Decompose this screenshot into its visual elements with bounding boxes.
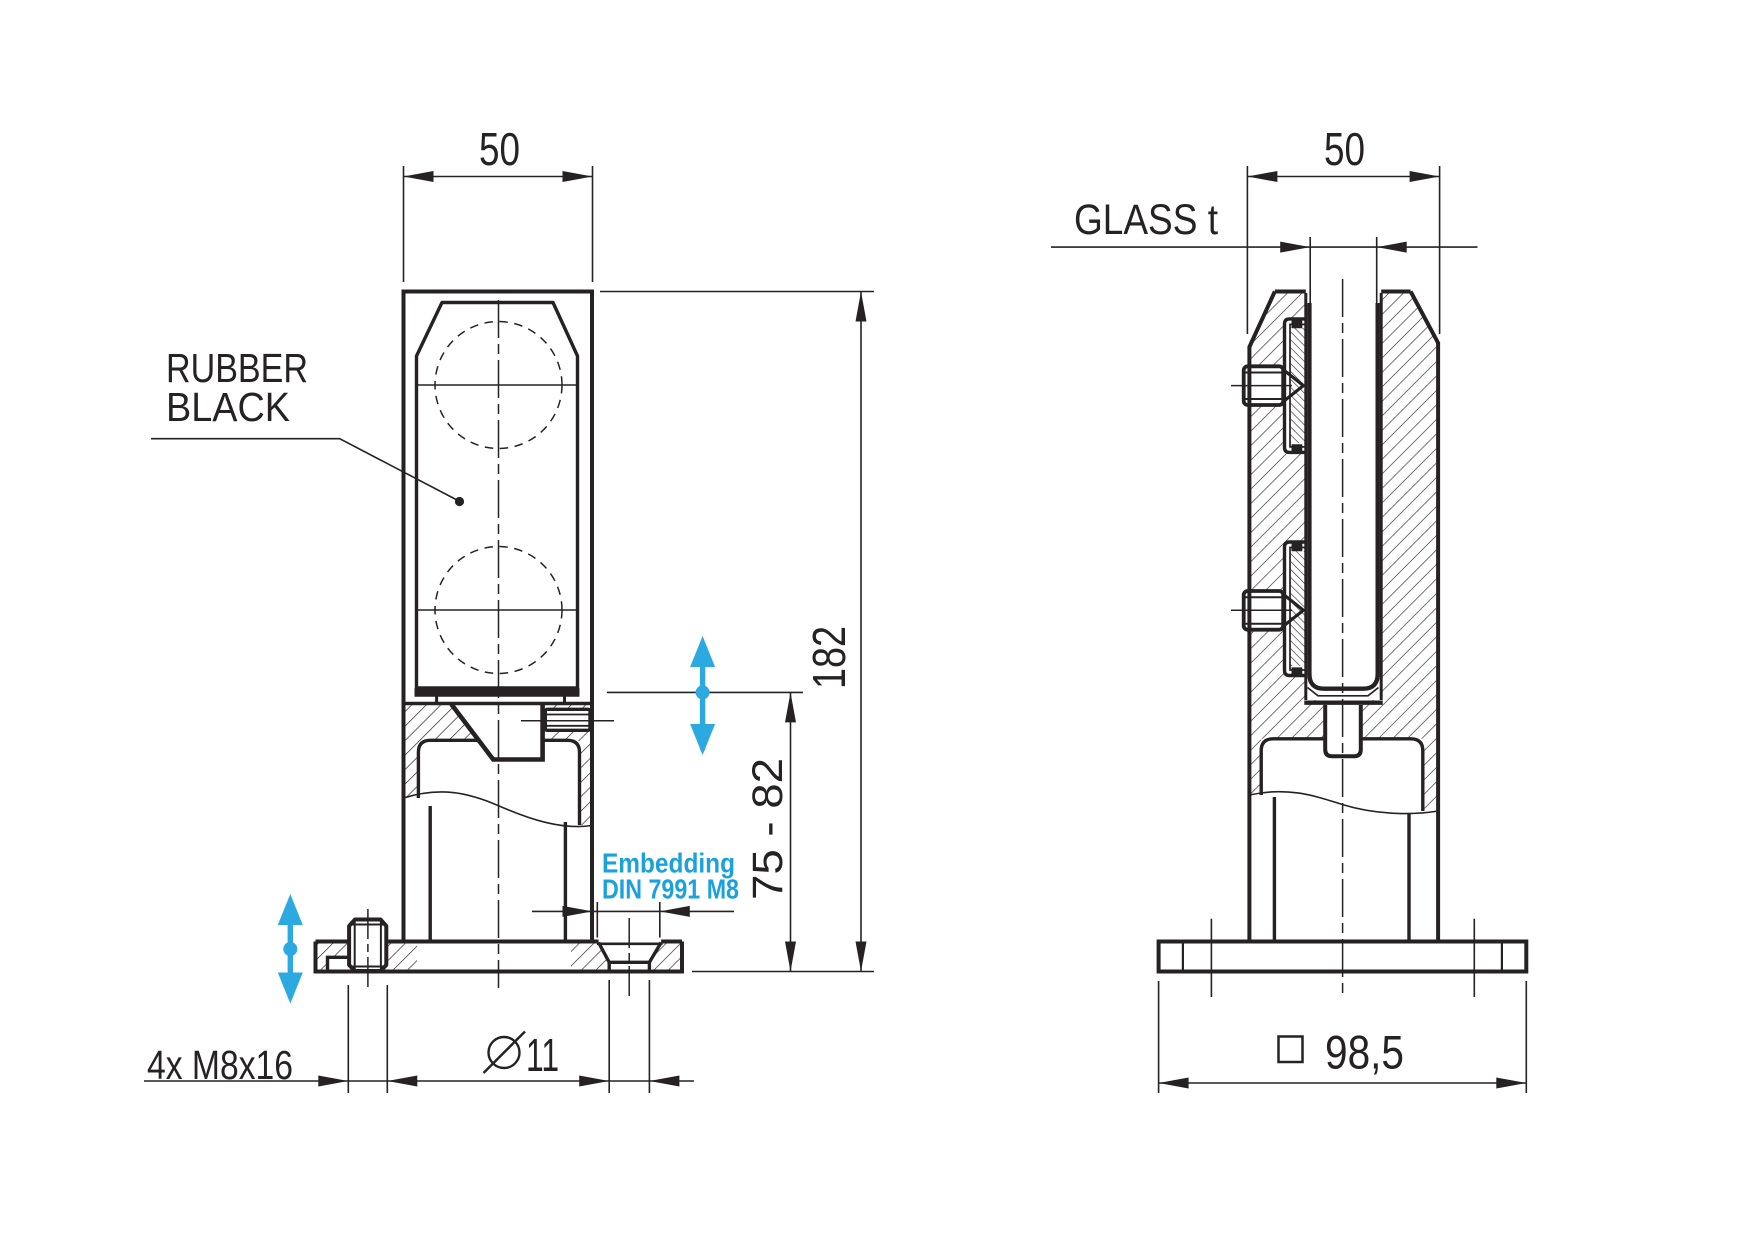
svg-text:11: 11 xyxy=(526,1029,559,1081)
svg-text:182: 182 xyxy=(803,626,855,689)
svg-text:DIN 7991 M8: DIN 7991 M8 xyxy=(602,874,739,905)
svg-text:GLASS t: GLASS t xyxy=(1074,196,1218,244)
svg-text:50: 50 xyxy=(479,123,520,175)
svg-text:BLACK: BLACK xyxy=(166,384,290,430)
svg-text:50: 50 xyxy=(1324,123,1365,175)
svg-text:4x M8x16: 4x M8x16 xyxy=(147,1042,293,1088)
svg-text:75 - 82: 75 - 82 xyxy=(744,758,792,900)
svg-text:98,5: 98,5 xyxy=(1325,1026,1404,1079)
